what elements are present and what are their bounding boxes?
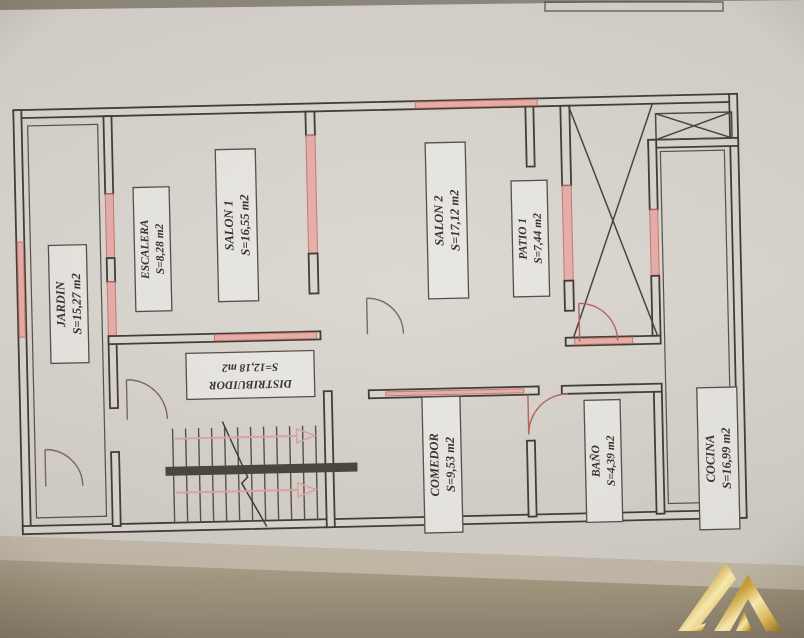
photo-vignette — [0, 0, 804, 638]
photo-of-floor-plan: JARDIN S=15,27 m2 ESCALERA S=8,28 m2 SAL… — [0, 0, 804, 638]
floor-plan-drawing: JARDIN S=15,27 m2 ESCALERA S=8,28 m2 SAL… — [0, 0, 804, 638]
